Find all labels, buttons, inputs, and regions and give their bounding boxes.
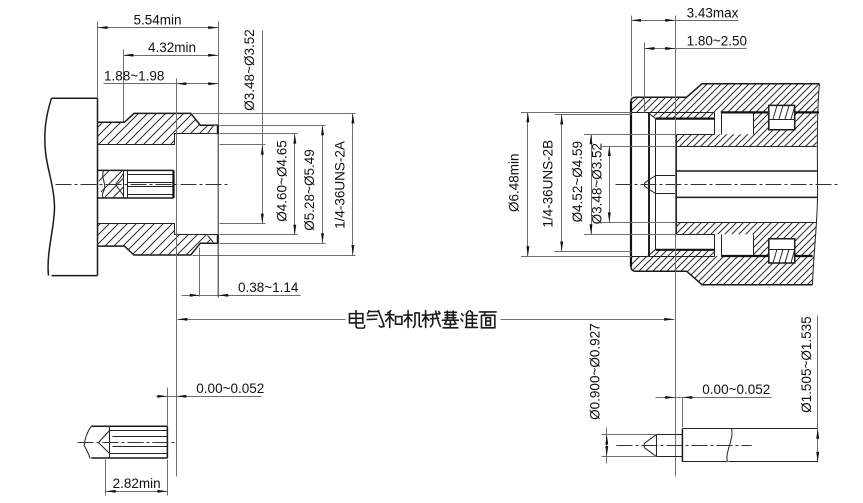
svg-text:2.82min: 2.82min — [113, 476, 161, 491]
svg-text:1/4-36UNS-2B: 1/4-36UNS-2B — [541, 140, 556, 228]
svg-text:Ø6.48min: Ø6.48min — [507, 153, 522, 212]
svg-text:Ø5.28~Ø5.49: Ø5.28~Ø5.49 — [302, 149, 317, 230]
svg-text:3.43max: 3.43max — [687, 6, 739, 21]
svg-text:Ø0.900~Ø0.927: Ø0.900~Ø0.927 — [588, 323, 603, 419]
svg-text:1.80~2.50: 1.80~2.50 — [687, 34, 747, 49]
svg-text:Ø3.48~Ø3.52: Ø3.48~Ø3.52 — [242, 29, 257, 110]
svg-text:Ø1.505~Ø1.535: Ø1.505~Ø1.535 — [799, 316, 814, 412]
svg-text:0.00~0.052: 0.00~0.052 — [702, 382, 770, 397]
svg-text:Ø4.60~Ø4.65: Ø4.60~Ø4.65 — [274, 140, 289, 221]
svg-text:0.38~1.14: 0.38~1.14 — [238, 280, 299, 295]
svg-text:1.88~1.98: 1.88~1.98 — [104, 69, 164, 84]
svg-text:Ø3.48~Ø3.52: Ø3.48~Ø3.52 — [589, 143, 604, 224]
svg-text:4.32min: 4.32min — [148, 40, 196, 55]
svg-text:5.54min: 5.54min — [133, 13, 181, 28]
svg-text:1/4-36UNS-2A: 1/4-36UNS-2A — [332, 141, 347, 229]
svg-text:Ø4.52~Ø4.59: Ø4.52~Ø4.59 — [570, 141, 585, 222]
svg-text:0.00~0.052: 0.00~0.052 — [196, 381, 264, 396]
